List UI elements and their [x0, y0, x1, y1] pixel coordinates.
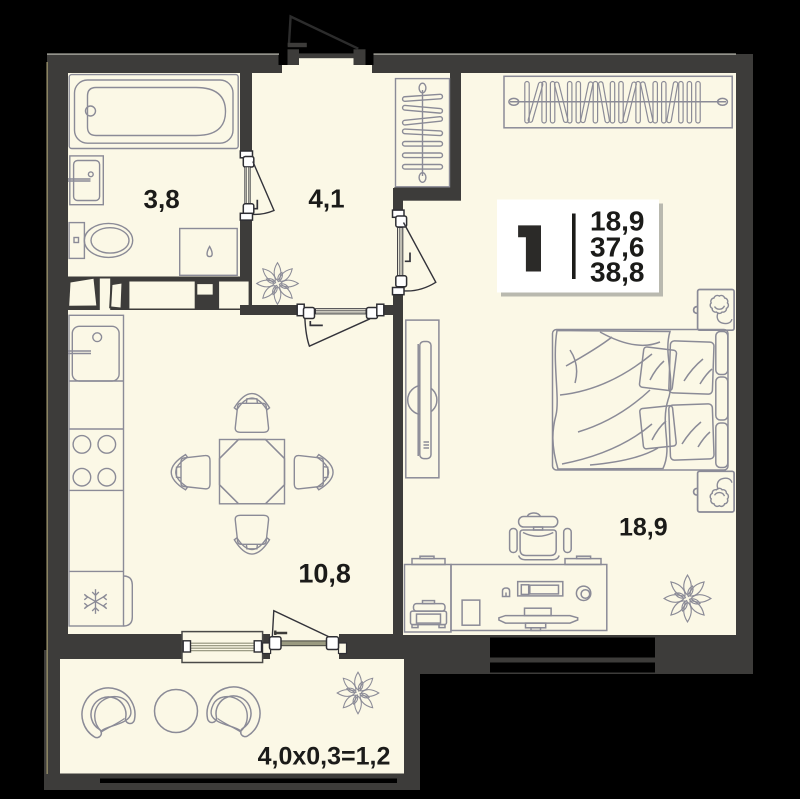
- svg-text:4,1: 4,1: [308, 184, 344, 214]
- svg-text:10,8: 10,8: [298, 559, 351, 589]
- svg-text:38,8: 38,8: [590, 257, 645, 288]
- svg-text:3,8: 3,8: [144, 184, 180, 214]
- svg-text:18,9: 18,9: [619, 514, 668, 542]
- svg-text:4,0x0,3=1,2: 4,0x0,3=1,2: [258, 743, 391, 771]
